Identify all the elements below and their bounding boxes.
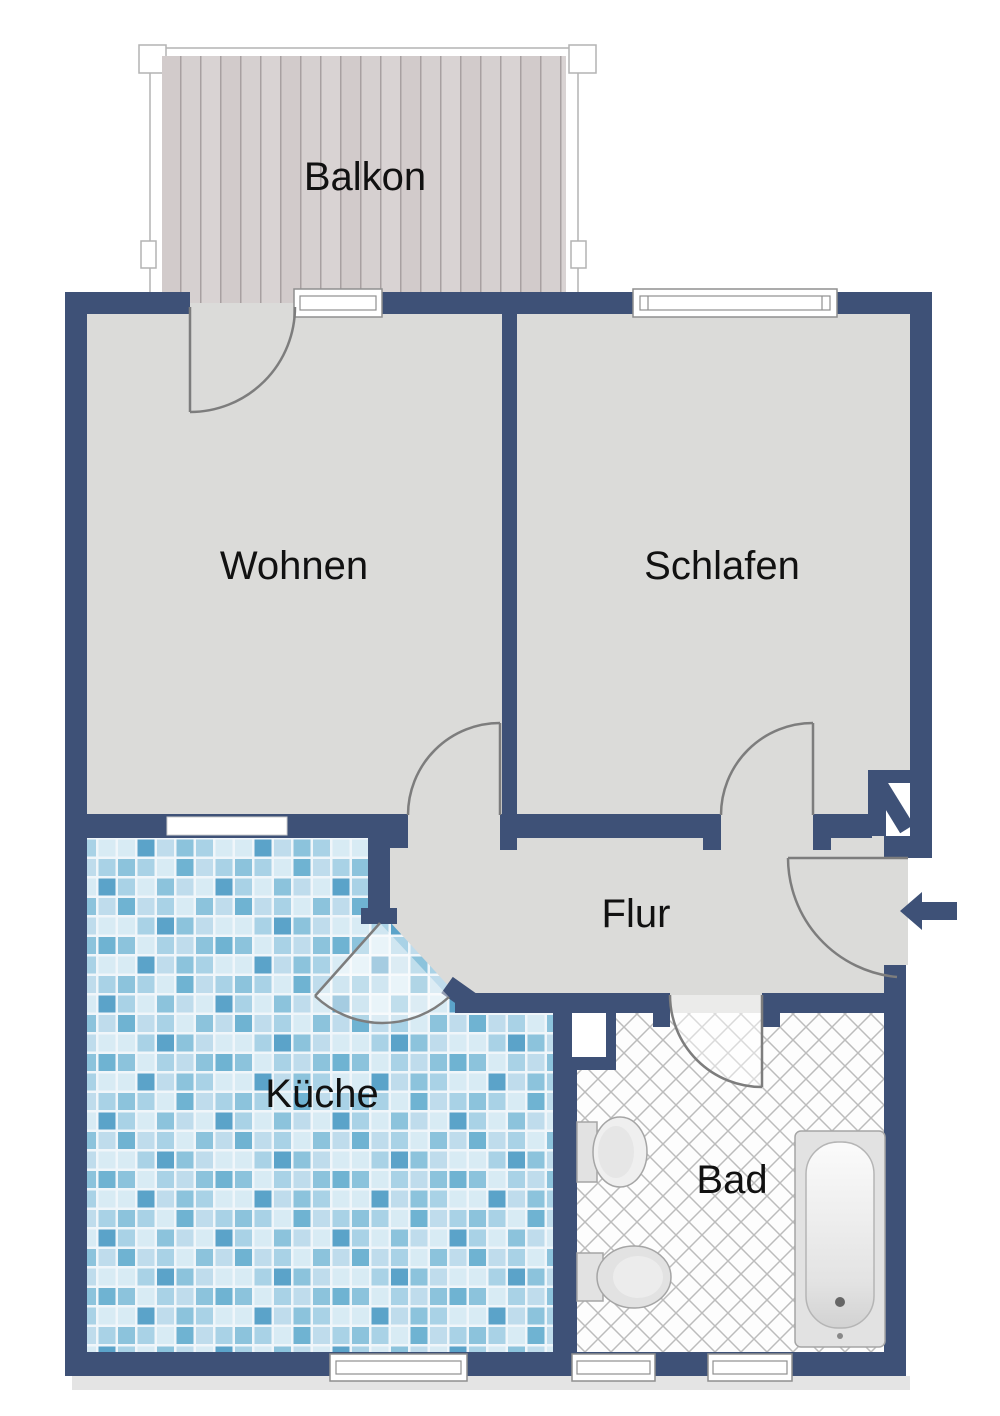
window-bedroom-top — [633, 289, 837, 317]
window-bathroom-bottom-left — [572, 1354, 655, 1381]
duct-wall-bottom — [572, 1057, 616, 1070]
door-jamb — [361, 908, 397, 924]
floor-plan-canvas: Balkon Wohnen Schlafen Flur Küche Bad — [0, 0, 1000, 1416]
door-jamb — [762, 1013, 780, 1027]
toilet — [577, 1246, 671, 1308]
door-jamb — [813, 838, 831, 850]
corner-shaft — [868, 770, 914, 836]
room-label-hallway: Flur — [602, 892, 671, 936]
wall-segment — [884, 836, 932, 858]
room-label-living: Wohnen — [220, 544, 368, 588]
tub-drain — [835, 1297, 845, 1307]
bedroom-door-opening — [721, 814, 813, 838]
wall-segment — [884, 965, 906, 1376]
bathtub — [795, 1131, 885, 1347]
wall-segment — [368, 814, 390, 924]
wall-segment — [500, 814, 721, 838]
duct-body — [572, 1013, 608, 1059]
railing-post — [569, 45, 596, 73]
floor-plan-page: Balkon Wohnen Schlafen Flur Küche Bad — [0, 0, 1000, 1416]
living-door-opening — [408, 814, 500, 838]
wall-segment — [502, 314, 517, 814]
balcony-door-threshold-wood — [190, 292, 295, 303]
wall-segment — [813, 814, 872, 838]
door-jamb — [703, 838, 721, 850]
wall-segment — [382, 292, 633, 314]
railing-post — [141, 241, 156, 268]
room-label-kitchen: Küche — [265, 1072, 378, 1116]
wall-segment — [762, 993, 906, 1013]
sink — [577, 1117, 647, 1187]
door-jamb — [653, 1013, 670, 1027]
window-living-top — [294, 289, 382, 317]
wall-segment — [65, 292, 87, 1376]
door-jamb — [500, 838, 517, 850]
tub-overflow — [837, 1333, 843, 1339]
room-label-bathroom: Bad — [696, 1158, 767, 1202]
railing-post — [571, 241, 586, 268]
room-label-bedroom: Schlafen — [644, 544, 800, 588]
bathroom-duct — [572, 1013, 616, 1070]
kitchen-pass-through — [167, 817, 287, 835]
entrance-arrow-icon — [900, 892, 957, 930]
window-kitchen-bottom — [330, 1354, 467, 1381]
room-label-balcony: Balkon — [304, 155, 426, 199]
window-bathroom-bottom-right — [708, 1354, 792, 1381]
wall-segment — [910, 292, 932, 836]
railing-post — [139, 45, 166, 73]
